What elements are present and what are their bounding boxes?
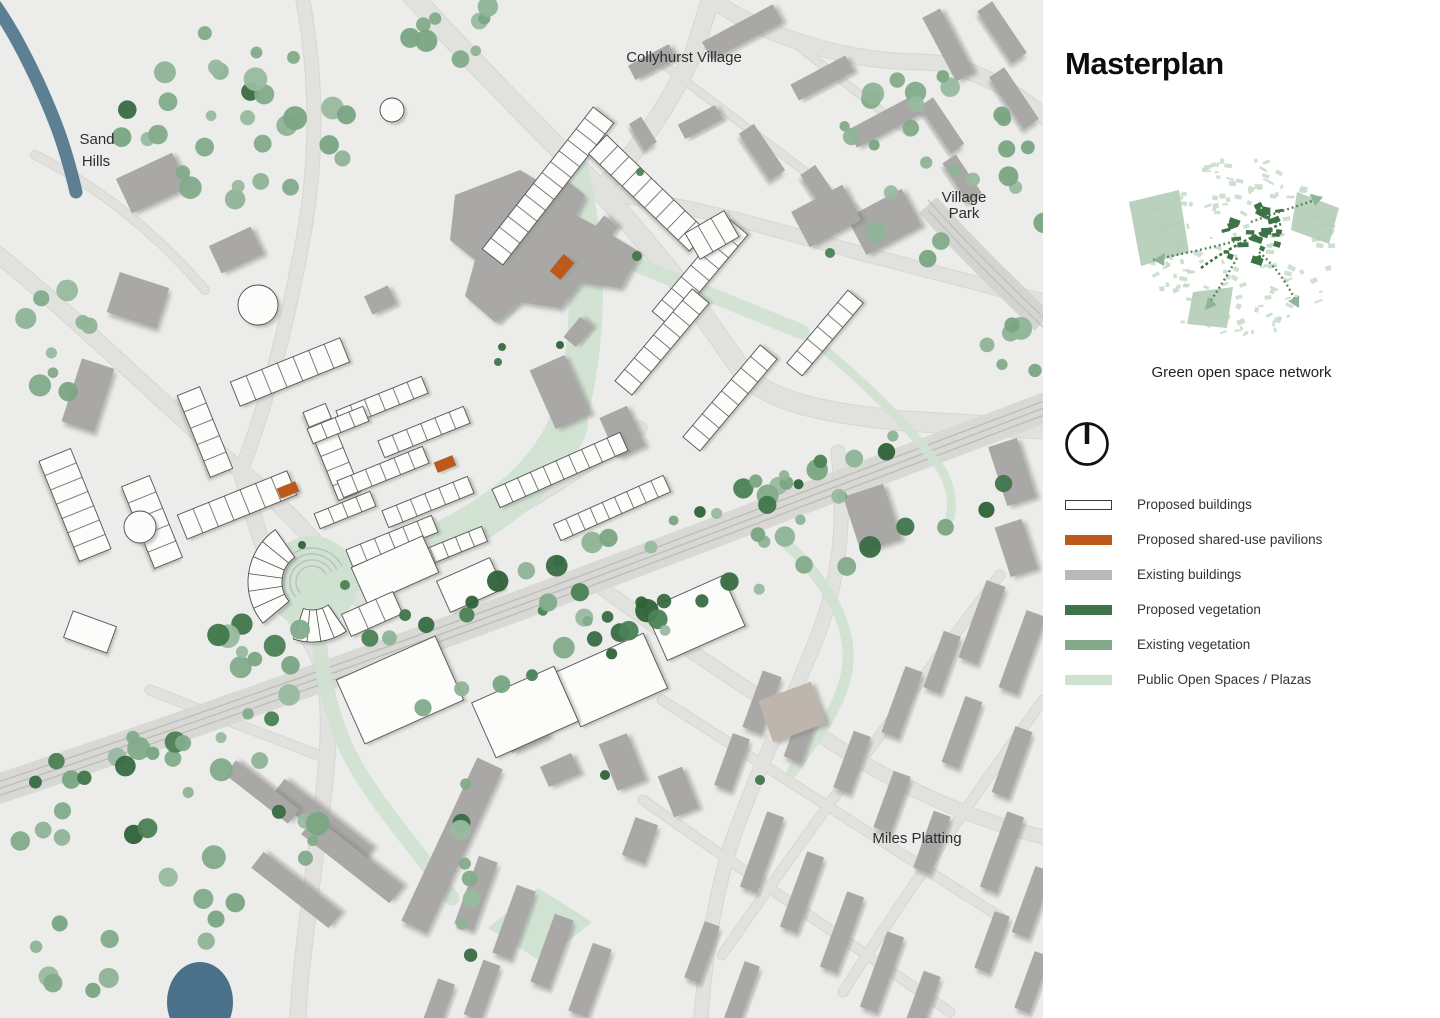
- legend-label: Existing buildings: [1137, 567, 1241, 582]
- legend-row-existing-buildings: Existing buildings: [1065, 557, 1425, 592]
- map-label-village-park-2: Park: [949, 205, 980, 222]
- map-label-collyhurst-village: Collyhurst Village: [626, 49, 742, 66]
- legend-row-proposed-buildings: Proposed buildings: [1065, 487, 1425, 522]
- north-arrow-icon: [1063, 420, 1111, 468]
- legend-label: Proposed shared-use pavilions: [1137, 532, 1322, 547]
- page-title: Masterplan: [1065, 46, 1224, 82]
- swatch-proposed-buildings: [1065, 500, 1112, 510]
- swatch-open-spaces: [1065, 675, 1112, 685]
- legend-row-existing-vegetation: Existing vegetation: [1065, 627, 1425, 662]
- legend: Proposed buildings Proposed shared-use p…: [1065, 487, 1425, 697]
- map-label-sand-hills-1: Sand: [79, 131, 114, 148]
- legend-label: Proposed buildings: [1137, 497, 1252, 512]
- legend-row-proposed-vegetation: Proposed vegetation: [1065, 592, 1425, 627]
- swatch-existing-buildings: [1065, 570, 1112, 580]
- inset-caption: Green open space network: [1043, 364, 1440, 381]
- legend-row-pavilions: Proposed shared-use pavilions: [1065, 522, 1425, 557]
- masterplan-map-drawing: Collyhurst Village Sand Hills Village Pa…: [0, 0, 1043, 1018]
- green-network-inset: [1101, 140, 1381, 365]
- masterplan-map: Collyhurst Village Sand Hills Village Pa…: [0, 0, 1043, 1018]
- legend-row-open-spaces: Public Open Spaces / Plazas: [1065, 662, 1425, 697]
- map-label-village-park-1: Village: [942, 189, 987, 206]
- map-label-sand-hills-2: Hills: [82, 153, 110, 170]
- map-label-miles-platting: Miles Platting: [872, 830, 961, 847]
- legend-label: Existing vegetation: [1137, 637, 1250, 652]
- legend-label: Proposed vegetation: [1137, 602, 1261, 617]
- legend-label: Public Open Spaces / Plazas: [1137, 672, 1311, 687]
- green-network-diagram: [1101, 140, 1381, 365]
- swatch-proposed-vegetation: [1065, 605, 1112, 615]
- swatch-pavilions: [1065, 535, 1112, 545]
- swatch-existing-vegetation: [1065, 640, 1112, 650]
- legend-panel: Masterplan Green open space network Prop…: [1043, 0, 1440, 1018]
